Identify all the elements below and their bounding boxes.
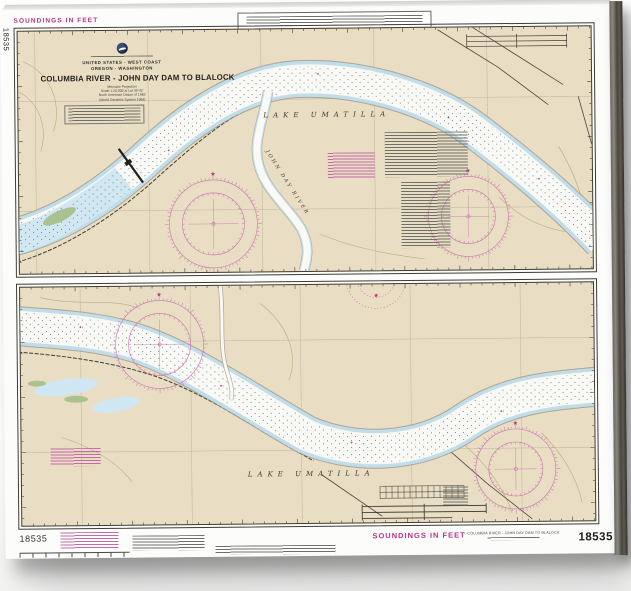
agency-fine-print <box>91 55 153 58</box>
chart-print: SOUNDINGS IN FEET 18535 <box>0 4 614 559</box>
soundings-in-feet-top: SOUNDINGS IN FEET <box>13 17 98 25</box>
notes-block-upper <box>401 182 451 248</box>
header-note-fine-print <box>68 108 140 122</box>
compass-star-icon: ★ <box>156 291 161 298</box>
compass-star-icon: ★ <box>513 420 518 427</box>
compass-rose-upper-left: ★ <box>164 170 262 273</box>
header-note-box <box>64 105 144 125</box>
chart-panel-upper: JOHN DAY RIVER ★ ★ <box>17 25 594 275</box>
compass-star-icon: ★ <box>210 171 215 178</box>
noaa-logo-icon <box>116 43 127 54</box>
chart-panel-lower: ★ ★ ★ <box>19 281 596 527</box>
lower-panel-map: ★ ★ ★ <box>20 282 595 525</box>
footer-fine-print-center <box>216 545 336 555</box>
footer-fine-print-left <box>132 535 204 551</box>
acrylic-right-edge <box>609 1 627 556</box>
footer-title-block: COLUMBIA RIVER - JOHN DAY DAM TO BLALOCK <box>467 531 559 540</box>
chart-number-bottom-left: 18535 <box>19 534 47 544</box>
chart-title-block: UNITED STATES - WEST COAST OREGON - WASH… <box>38 42 207 102</box>
footer-scale-bar <box>20 552 130 558</box>
acrylic-top-edge <box>2 0 611 10</box>
photo-scene: SOUNDINGS IN FEET 18535 <box>0 0 631 591</box>
small-table-lower <box>443 486 468 506</box>
projection-note: Mercator Projection Scale 1:20,000 at La… <box>38 84 206 102</box>
footer-chart-title: COLUMBIA RIVER - JOHN DAY DAM TO BLALOCK <box>467 531 559 536</box>
states-line: OREGON - WASHINGTON <box>38 65 206 72</box>
magenta-caution-note-upper <box>328 152 375 178</box>
tabulation-table-upper <box>385 131 468 177</box>
magenta-authority-note <box>60 532 118 550</box>
footer-subtitle-fine-print <box>487 536 539 539</box>
top-note-fine-print <box>246 15 422 26</box>
chart-number-left-edge: 18535 <box>2 28 11 51</box>
lake-umatilla-label-upper: LAKE UMATILLA <box>263 110 390 119</box>
lake-umatilla-label-lower: LAKE UMATILLA <box>248 469 375 478</box>
soundings-in-feet-bottom: SOUNDINGS IN FEET <box>372 530 465 540</box>
chart-main-title: COLUMBIA RIVER - JOHN DAY DAM TO BLALOCK <box>41 73 204 84</box>
shallow-water-patches <box>28 375 141 417</box>
magenta-note-lower <box>51 448 101 466</box>
chart-number-bottom-right: 18535 <box>578 531 613 543</box>
compass-star-icon: ★ <box>373 292 378 299</box>
graphic-scales-upper <box>467 34 567 49</box>
